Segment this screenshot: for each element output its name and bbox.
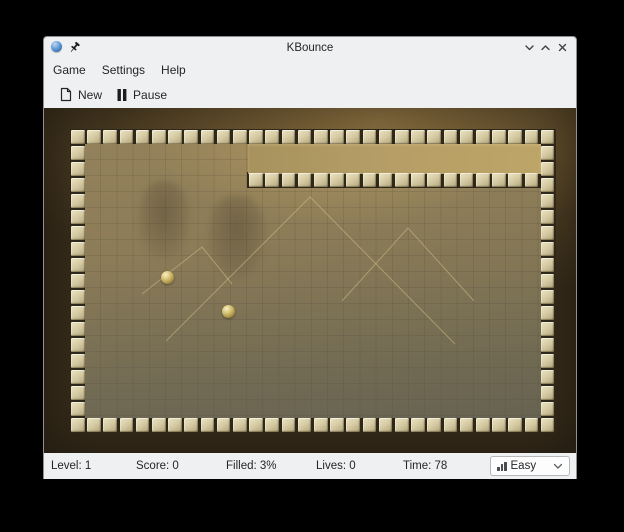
wall-tile <box>87 130 101 144</box>
wall-tile <box>492 130 506 144</box>
wall-tile <box>152 418 166 432</box>
wall-tile <box>120 418 134 432</box>
wall-tile <box>346 173 360 187</box>
wall-tile <box>460 173 474 187</box>
wall-tile <box>168 130 182 144</box>
lives-indicator: Lives: 0 <box>316 453 356 479</box>
wall-tile <box>541 322 555 336</box>
wall-tile <box>282 418 296 432</box>
wall-tile <box>411 418 425 432</box>
wall-tile <box>298 130 312 144</box>
new-document-icon <box>59 87 73 102</box>
wall-tile <box>71 210 85 224</box>
wall-tile <box>103 130 117 144</box>
wall-tile <box>330 418 344 432</box>
wall-tile <box>476 130 490 144</box>
wall-tile <box>136 130 150 144</box>
wall-tile <box>71 322 85 336</box>
minimize-button[interactable] <box>522 40 537 55</box>
toolbar: New Pause <box>44 81 576 108</box>
wall-tile <box>541 210 555 224</box>
wall-tile <box>265 130 279 144</box>
wall-tile <box>330 130 344 144</box>
wall-tile <box>541 162 555 176</box>
wall-tile <box>541 306 555 320</box>
score-indicator: Score: 0 <box>136 453 179 479</box>
wall-tile <box>444 130 458 144</box>
wall-tile <box>265 173 279 187</box>
level-indicator: Level: 1 <box>51 453 91 479</box>
wall-tile <box>282 130 296 144</box>
statusbar: Level: 1 Score: 0 Filled: 3% Lives: 0 Ti… <box>44 453 576 479</box>
wall-tile <box>136 418 150 432</box>
wall-tile <box>71 354 85 368</box>
difficulty-value: Easy <box>511 460 537 472</box>
wall-tile <box>492 173 506 187</box>
wall-tile <box>541 386 555 400</box>
wall-tile <box>314 130 328 144</box>
kbounce-window: KBounce Game Settings Help New <box>43 36 577 479</box>
wall-tile <box>379 173 393 187</box>
wall-tile <box>330 173 344 187</box>
wall-tile <box>541 402 555 416</box>
wall-tile <box>541 194 555 208</box>
wall-tile <box>87 418 101 432</box>
wall-tile <box>249 173 263 187</box>
wall-tile <box>314 173 328 187</box>
wall-tile <box>379 130 393 144</box>
titlebar[interactable]: KBounce <box>44 37 576 59</box>
wall-tile <box>233 130 247 144</box>
menu-settings[interactable]: Settings <box>94 59 153 81</box>
wall-tile <box>363 418 377 432</box>
wall-tile <box>541 178 555 192</box>
wall-tile <box>363 130 377 144</box>
wall-tile <box>444 173 458 187</box>
wall-tile <box>346 130 360 144</box>
wall-tile <box>460 130 474 144</box>
ball <box>161 271 174 284</box>
wall-tile <box>525 173 539 187</box>
wall-tile <box>427 130 441 144</box>
wall-tile <box>541 130 555 144</box>
wall-tile <box>541 290 555 304</box>
wall-tile <box>395 173 409 187</box>
wall-tile <box>201 130 215 144</box>
wall-tile <box>71 370 85 384</box>
difficulty-dropdown[interactable]: Easy <box>490 456 570 476</box>
window-title: KBounce <box>44 37 576 59</box>
wall-tile <box>314 418 328 432</box>
maximize-button[interactable] <box>538 40 553 55</box>
wall-tile <box>217 418 231 432</box>
menu-game[interactable]: Game <box>45 59 94 81</box>
wall-tile <box>476 173 490 187</box>
wall-tile <box>541 274 555 288</box>
wall-tile <box>476 418 490 432</box>
wall-tile <box>249 418 263 432</box>
game-area <box>44 108 576 453</box>
wall-tile <box>265 418 279 432</box>
close-button[interactable] <box>555 40 570 55</box>
wall-tile <box>233 418 247 432</box>
wall-tile <box>282 173 296 187</box>
wall-tile <box>541 418 555 432</box>
difficulty-bars-icon <box>497 462 507 471</box>
wall-tile <box>71 402 85 416</box>
wall-tile <box>395 418 409 432</box>
wall-tile <box>525 130 539 144</box>
wall-tile <box>541 146 555 160</box>
wall-tile <box>71 338 85 352</box>
wall-tile <box>152 130 166 144</box>
wall-tile <box>541 242 555 256</box>
pause-button-label: Pause <box>133 88 167 102</box>
wall-tile <box>541 370 555 384</box>
wall-tile <box>71 242 85 256</box>
wall-tile <box>379 418 393 432</box>
time-indicator: Time: 78 <box>403 453 447 479</box>
wall-tile <box>71 306 85 320</box>
wall-tile <box>411 173 425 187</box>
wall-tile <box>298 173 312 187</box>
filled-indicator: Filled: 3% <box>226 453 277 479</box>
chevron-down-icon <box>553 463 563 470</box>
wall-tile <box>71 386 85 400</box>
wall-tile <box>508 173 522 187</box>
wall-tile <box>217 130 231 144</box>
menu-help[interactable]: Help <box>153 59 194 81</box>
wall-tile <box>541 258 555 272</box>
wall-tile <box>201 418 215 432</box>
wall-tile <box>508 130 522 144</box>
wall-tile <box>427 418 441 432</box>
wall-tile <box>298 418 312 432</box>
wall-tile <box>71 258 85 272</box>
wall-tile <box>363 173 377 187</box>
wall-tile <box>460 418 474 432</box>
wall-tile <box>71 290 85 304</box>
wall-tile <box>71 146 85 160</box>
wall-tile <box>249 130 263 144</box>
wall-tile <box>541 354 555 368</box>
wall-tile <box>71 130 85 144</box>
menubar: Game Settings Help <box>44 59 576 81</box>
wall-tile <box>411 130 425 144</box>
wall-tile <box>71 274 85 288</box>
wall-tile <box>71 194 85 208</box>
wall-tile <box>71 162 85 176</box>
wall-tile <box>346 418 360 432</box>
game-board[interactable] <box>70 129 556 433</box>
pause-icon <box>116 88 128 102</box>
wall-tile <box>168 418 182 432</box>
wall-tile <box>184 418 198 432</box>
wall-tile <box>103 418 117 432</box>
wall-tile <box>492 418 506 432</box>
ball <box>222 305 235 318</box>
new-game-button[interactable]: New <box>59 87 102 102</box>
wall-tile <box>71 418 85 432</box>
wall-tile <box>120 130 134 144</box>
wall-tile <box>71 178 85 192</box>
wall-tile <box>541 226 555 240</box>
new-button-label: New <box>78 88 102 102</box>
wall-tile <box>184 130 198 144</box>
wall-tile <box>508 418 522 432</box>
wall-tile <box>427 173 441 187</box>
wall-tile <box>444 418 458 432</box>
wall-tile <box>541 338 555 352</box>
wall-tile <box>71 226 85 240</box>
pause-button[interactable]: Pause <box>116 88 167 102</box>
wall-tile <box>395 130 409 144</box>
wall-tile <box>525 418 539 432</box>
